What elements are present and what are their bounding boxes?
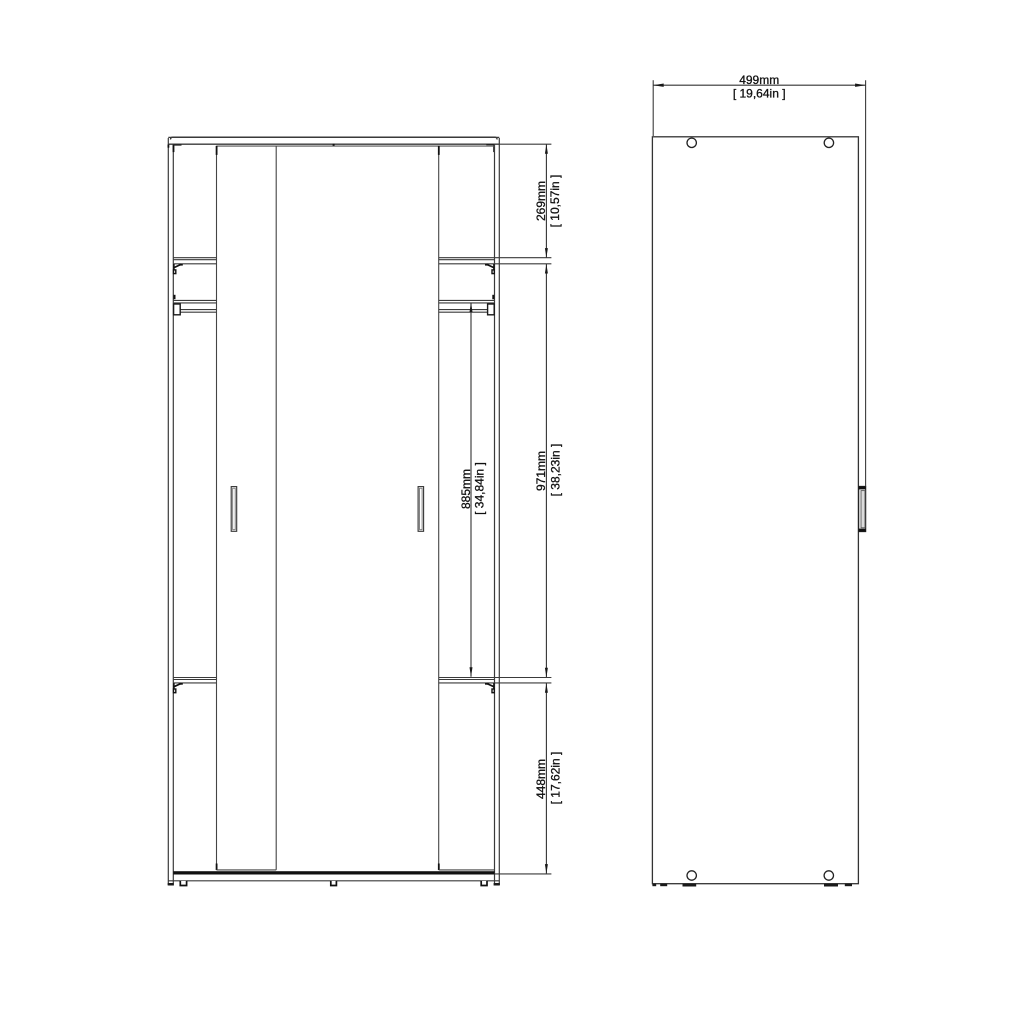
- svg-text:448mm: 448mm: [534, 759, 548, 799]
- svg-text:[ 10,57in ]: [ 10,57in ]: [548, 175, 562, 228]
- svg-text:269mm: 269mm: [534, 181, 548, 221]
- svg-text:[ 17,62in ]: [ 17,62in ]: [549, 752, 563, 805]
- svg-text:971mm: 971mm: [534, 451, 548, 491]
- svg-text:885mm: 885mm: [459, 469, 473, 509]
- svg-text:[ 19,64in ]: [ 19,64in ]: [733, 86, 786, 100]
- svg-text:[ 34,84in ]: [ 34,84in ]: [473, 462, 487, 515]
- svg-text:[ 38,23in ]: [ 38,23in ]: [549, 444, 563, 497]
- svg-text:499mm: 499mm: [739, 73, 779, 87]
